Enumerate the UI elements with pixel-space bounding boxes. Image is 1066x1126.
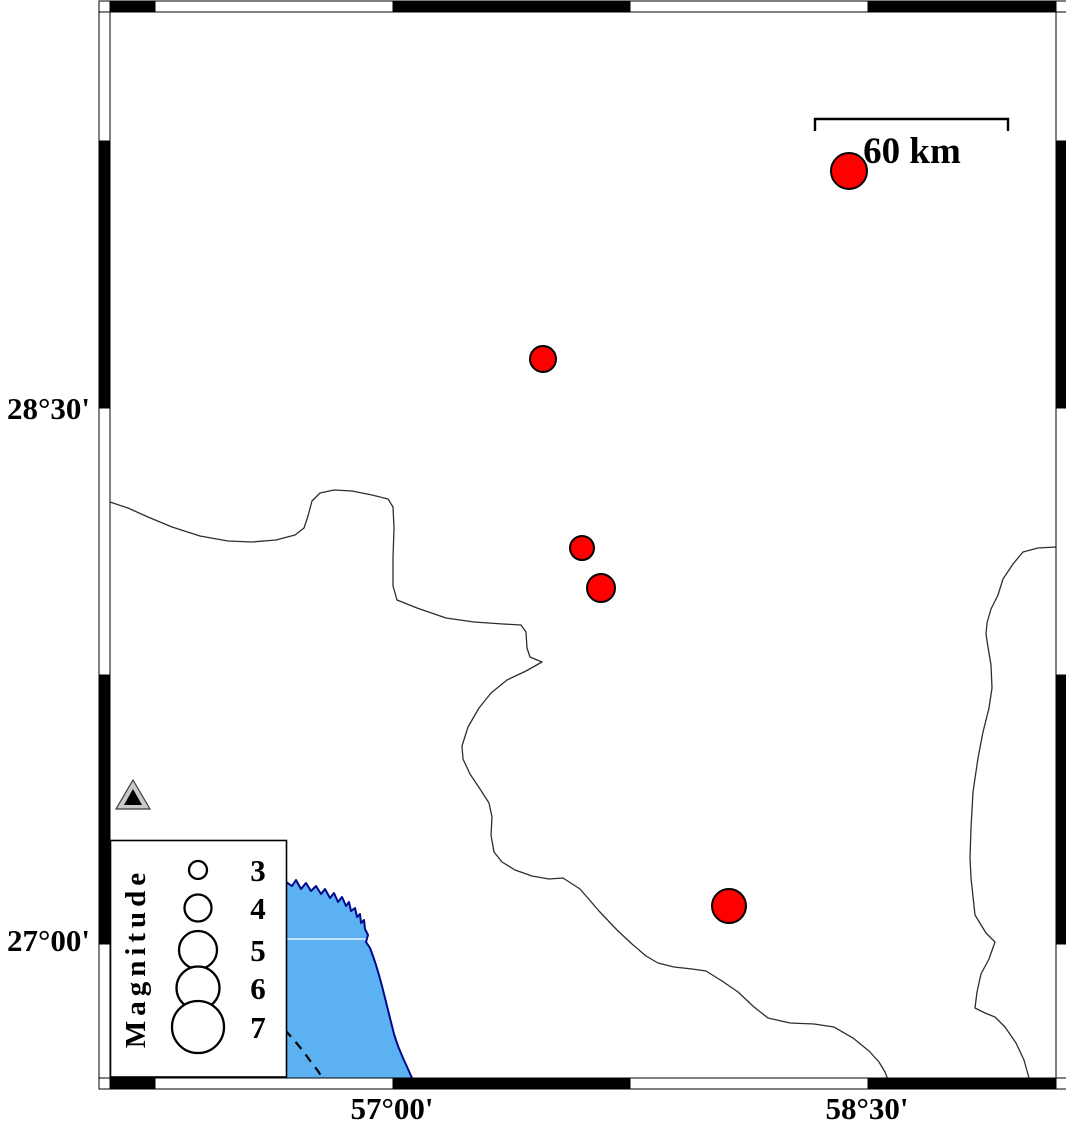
scale-bar-label: 60 km [863,131,961,172]
frame-bottom-segment [868,1078,1056,1089]
frame-bottom-segment [630,1078,868,1089]
legend-number: 5 [250,933,266,968]
frame-top-segment [155,1,393,12]
frame-corner [1056,1,1066,12]
frame-corner [1056,1078,1066,1089]
frame-corner [99,1078,110,1089]
frame-bottom-segment [110,1078,155,1089]
legend-number: 6 [250,971,266,1006]
frame-right-segment [1056,408,1066,675]
frame-left-segment [99,675,110,944]
frame-left-segment [99,141,110,408]
station-marker [116,780,150,809]
earthquake-marker [587,574,615,602]
frame-bottom-segment [155,1078,393,1089]
magnitude-legend: Magnitude 34567 [111,841,287,1078]
frame-right-segment [1056,141,1066,408]
earthquake-marker [570,536,594,560]
lon-label-57-00: 57°00' [350,1091,433,1126]
frame-bottom-segment [393,1078,630,1089]
legend-number: 7 [250,1010,266,1045]
legend-number: 4 [250,891,266,926]
frame-left-segment [99,408,110,675]
legend-title: Magnitude [120,868,152,1048]
lon-label-58-30: 58°30' [825,1091,908,1126]
frame-right-segment [1056,12,1066,141]
seismicity-map: Magnitude 34567 60 km 28°30' 27°00' 57°0… [0,0,1066,1126]
frame-top-segment [630,1,868,12]
frame-corner [99,1,110,12]
frame-top-segment [868,1,1056,12]
frame-top-segment [110,1,155,12]
legend-circle-m3 [189,861,207,879]
frame-top-segment [393,1,630,12]
legend-circle-m4 [185,895,212,922]
lat-label-28-30: 28°30' [7,391,90,426]
boundary-line-east [970,547,1056,1078]
frame-left-segment [99,944,110,1078]
map-page: Magnitude 34567 60 km 28°30' 27°00' 57°0… [0,0,1066,1126]
earthquake-marker [530,346,556,372]
earthquake-epicenters [530,153,867,923]
frame-left-segment [99,12,110,141]
legend-number: 3 [250,853,266,888]
legend-circle-m7 [172,1001,224,1053]
earthquake-marker [712,889,746,923]
lat-label-27-00: 27°00' [7,923,90,958]
earthquake-marker [831,153,867,189]
scale-bar-bracket [815,119,1008,131]
frame-right-segment [1056,675,1066,944]
frame-right-segment [1056,944,1066,1078]
legend-circle-m5 [179,931,217,969]
